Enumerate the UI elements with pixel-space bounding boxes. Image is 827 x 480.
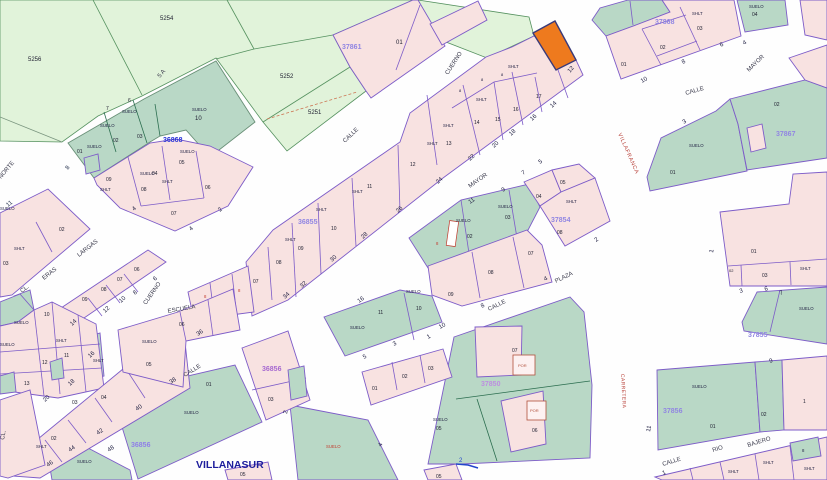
svg-text:SUELO: SUELO (142, 339, 157, 344)
svg-text:SUELO: SUELO (498, 204, 513, 209)
svg-text:05: 05 (146, 362, 152, 368)
svg-text:SUELO: SUELO (689, 143, 704, 148)
svg-text:SUELO: SUELO (406, 289, 421, 294)
svg-text:SHLT: SHLT (352, 189, 363, 194)
svg-text:04: 04 (536, 194, 542, 200)
svg-text:01: 01 (670, 170, 676, 176)
svg-text:SUELO: SUELO (326, 444, 341, 449)
svg-text:SHLT: SHLT (476, 97, 487, 102)
svg-text:15: 15 (495, 117, 501, 123)
svg-text:05: 05 (179, 160, 185, 166)
svg-text:06: 06 (179, 322, 185, 328)
svg-text:07: 07 (528, 251, 534, 257)
svg-text:SHLT: SHLT (566, 199, 577, 204)
svg-text:10: 10 (416, 306, 422, 312)
svg-text:08: 08 (141, 187, 147, 193)
svg-text:SHLT: SHLT (14, 246, 25, 251)
svg-text:04: 04 (101, 395, 107, 401)
svg-text:05: 05 (240, 472, 246, 478)
svg-text:SHLT: SHLT (800, 266, 811, 271)
svg-text:SUELO: SUELO (87, 144, 102, 149)
svg-text:SHLT: SHLT (763, 460, 774, 465)
svg-text:03: 03 (505, 215, 511, 221)
svg-text:08: 08 (276, 260, 282, 266)
svg-text:03: 03 (697, 26, 703, 32)
svg-text:06: 06 (134, 267, 140, 273)
svg-text:12: 12 (410, 162, 416, 168)
svg-text:SUELO: SUELO (350, 325, 365, 330)
svg-text:02: 02 (761, 412, 767, 418)
svg-text:01: 01 (77, 149, 83, 155)
svg-text:02: 02 (729, 268, 734, 273)
svg-text:10: 10 (331, 226, 337, 232)
svg-text:POR: POR (530, 408, 539, 413)
svg-text:01: 01 (621, 62, 627, 68)
svg-text:05: 05 (436, 474, 442, 480)
svg-text:09: 09 (448, 292, 454, 298)
svg-text:03: 03 (268, 397, 274, 403)
svg-text:SUELO: SUELO (122, 109, 137, 114)
svg-text:SHLT: SHLT (728, 469, 739, 474)
svg-text:01: 01 (396, 40, 403, 46)
svg-text:37868: 37868 (655, 19, 675, 26)
svg-text:06: 06 (532, 428, 538, 434)
svg-text:7: 7 (106, 106, 109, 112)
svg-text:SHLT: SHLT (285, 237, 296, 242)
svg-text:36855: 36855 (298, 219, 318, 226)
svg-text:07: 07 (171, 211, 177, 217)
svg-text:37850: 37850 (481, 381, 501, 388)
svg-text:02: 02 (402, 374, 408, 380)
svg-text:SUELO: SUELO (749, 4, 764, 9)
svg-text:07: 07 (117, 277, 123, 283)
svg-text:05: 05 (560, 180, 566, 186)
svg-text:SHLT: SHLT (93, 358, 104, 363)
svg-text:03: 03 (3, 261, 9, 267)
svg-text:16: 16 (513, 107, 519, 113)
svg-text:08: 08 (488, 270, 494, 276)
svg-text:03: 03 (72, 400, 78, 406)
svg-text:10: 10 (195, 116, 202, 122)
svg-text:5251: 5251 (308, 110, 322, 116)
svg-text:VILLANASUR: VILLANASUR (196, 459, 264, 471)
svg-text:SHLT: SHLT (100, 187, 111, 192)
svg-text:SHLT: SHLT (56, 338, 67, 343)
svg-text:37855: 37855 (748, 332, 768, 339)
svg-text:11: 11 (64, 353, 69, 359)
svg-text:SHLT: SHLT (692, 11, 703, 16)
svg-text:5256: 5256 (28, 57, 42, 63)
svg-text:03: 03 (137, 134, 143, 140)
svg-text:03: 03 (428, 366, 434, 372)
svg-text:POR: POR (518, 363, 527, 368)
svg-text:09: 09 (298, 246, 304, 252)
svg-text:01: 01 (751, 249, 757, 255)
svg-text:37856: 37856 (663, 408, 683, 415)
svg-text:07: 07 (253, 279, 259, 285)
svg-text:09: 09 (106, 177, 112, 183)
svg-text:5252: 5252 (280, 74, 294, 80)
svg-text:SUELO: SUELO (184, 410, 199, 415)
svg-text:36856: 36856 (131, 442, 151, 449)
svg-text:08: 08 (557, 230, 563, 236)
svg-text:SUELO: SUELO (100, 123, 115, 128)
svg-text:SHLT: SHLT (36, 444, 47, 449)
svg-text:11: 11 (367, 184, 372, 190)
svg-text:SUELO: SUELO (0, 206, 15, 211)
svg-text:SHLT: SHLT (508, 64, 519, 69)
svg-text:05: 05 (436, 426, 442, 432)
svg-text:37854: 37854 (551, 217, 571, 224)
svg-text:09: 09 (82, 297, 88, 303)
svg-text:10: 10 (44, 312, 50, 318)
svg-text:06: 06 (205, 185, 211, 191)
svg-text:SUELO: SUELO (456, 218, 471, 223)
svg-text:36868: 36868 (163, 137, 183, 144)
svg-text:01: 01 (372, 386, 378, 392)
svg-text:04: 04 (752, 12, 758, 18)
svg-text:02: 02 (51, 436, 57, 442)
svg-text:SUELO: SUELO (140, 171, 155, 176)
svg-text:17: 17 (536, 94, 542, 100)
svg-text:SHLT: SHLT (443, 123, 454, 128)
svg-text:36856: 36856 (262, 366, 282, 373)
svg-text:SHLT: SHLT (162, 179, 173, 184)
svg-text:02: 02 (467, 234, 473, 240)
svg-text:SUELO: SUELO (799, 306, 814, 311)
svg-text:SUELO: SUELO (192, 107, 207, 112)
svg-text:14: 14 (474, 120, 480, 126)
svg-text:11: 11 (378, 310, 383, 316)
svg-text:37861: 37861 (342, 44, 362, 51)
svg-text:SUELO: SUELO (433, 417, 448, 422)
svg-text:13: 13 (24, 381, 30, 387)
svg-text:SUELO: SUELO (14, 320, 29, 325)
svg-text:01: 01 (206, 382, 212, 388)
svg-text:SHLT: SHLT (804, 466, 815, 471)
svg-text:5254: 5254 (160, 16, 174, 22)
svg-text:SUELO: SUELO (77, 459, 92, 464)
svg-text:SHLT: SHLT (427, 141, 438, 146)
svg-text:13: 13 (446, 141, 452, 147)
svg-text:08: 08 (101, 287, 107, 293)
svg-text:SUELO: SUELO (180, 149, 195, 154)
svg-text:SUELO: SUELO (692, 384, 707, 389)
svg-text:SUELO: SUELO (0, 342, 15, 347)
svg-text:SHLT: SHLT (316, 207, 327, 212)
svg-text:02: 02 (113, 138, 119, 144)
svg-text:6: 6 (128, 98, 131, 104)
svg-text:1: 1 (803, 399, 806, 405)
svg-text:02: 02 (59, 227, 65, 233)
svg-text:03: 03 (762, 273, 768, 279)
svg-text:12: 12 (42, 360, 48, 366)
svg-text:37867: 37867 (776, 131, 796, 138)
svg-text:01: 01 (710, 424, 716, 430)
svg-text:07: 07 (512, 348, 518, 354)
svg-text:02: 02 (774, 102, 780, 108)
svg-text:02: 02 (660, 45, 666, 51)
